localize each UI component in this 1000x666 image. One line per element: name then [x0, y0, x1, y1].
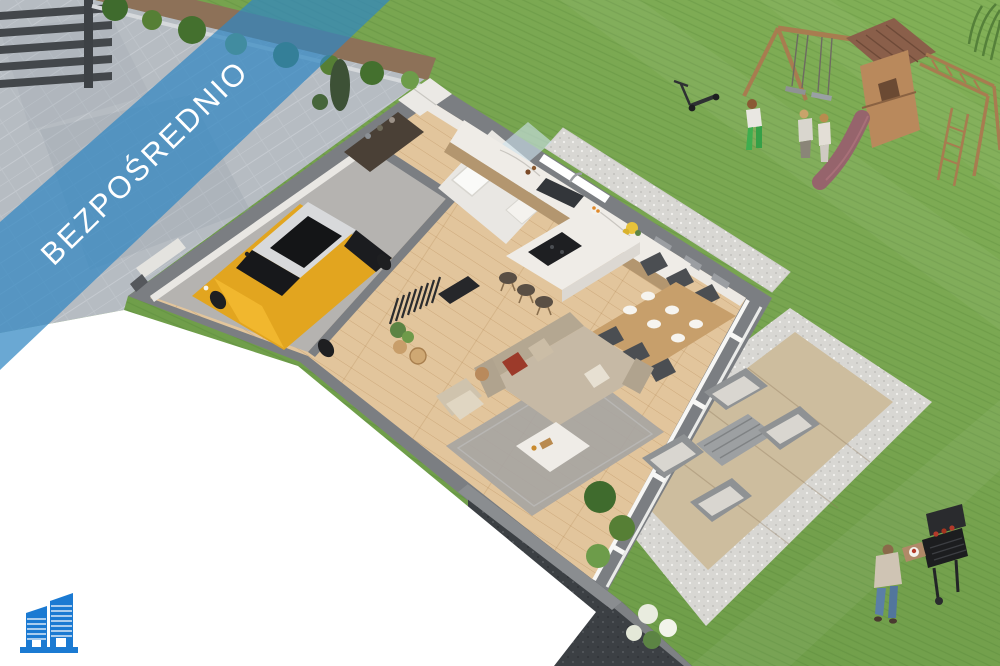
hydrangea — [626, 625, 642, 641]
scene-canvas: BEZPOŚREDNIO — [0, 0, 1000, 666]
side-table — [475, 367, 489, 381]
hob-ring — [560, 250, 564, 254]
child-shirt — [746, 108, 762, 128]
bottle — [525, 169, 530, 174]
grilled-meat — [933, 531, 938, 536]
bush — [586, 544, 610, 568]
car-headlight — [204, 286, 209, 291]
hob-ring — [550, 245, 554, 249]
child-pants — [756, 126, 762, 148]
stool — [517, 284, 535, 296]
plate — [689, 320, 703, 329]
man-shoe — [874, 616, 882, 621]
scooter-wheel — [689, 105, 696, 112]
stool — [535, 296, 553, 308]
cypress-bush — [330, 59, 350, 111]
child-head — [820, 114, 829, 123]
stool — [499, 272, 517, 284]
raw-meat — [912, 549, 916, 553]
bush — [142, 10, 162, 30]
fruit-bowl — [591, 205, 601, 215]
child-shorts — [800, 140, 811, 158]
flower-leaves — [635, 230, 641, 236]
man-shoe — [889, 618, 897, 623]
plate — [671, 334, 685, 343]
plate — [623, 306, 637, 315]
orange — [592, 206, 596, 210]
plant-pot — [393, 340, 407, 354]
scooter-wheel — [713, 94, 720, 101]
child-head — [800, 110, 809, 119]
car-mirror — [245, 252, 249, 256]
bush — [178, 16, 206, 44]
hydrangea — [659, 619, 677, 637]
table-decor — [531, 445, 536, 450]
hydrangea — [638, 604, 658, 624]
grilled-meat — [941, 528, 946, 533]
hydrangea-leaves — [643, 631, 661, 649]
logo-base — [20, 647, 78, 653]
bottle — [532, 166, 536, 170]
child-shirt — [798, 118, 813, 142]
grill-leg — [956, 560, 958, 592]
logo-windows-right — [51, 606, 72, 636]
bush — [401, 71, 419, 89]
hanging-clothes — [389, 117, 395, 123]
man-jacket — [874, 552, 902, 588]
plate — [641, 292, 655, 301]
bush — [312, 94, 328, 110]
bush — [360, 61, 384, 85]
grilled-meat — [949, 525, 954, 530]
grill-wheel — [935, 597, 943, 605]
logo-door-left — [32, 640, 41, 647]
bush — [584, 481, 616, 513]
logo-door-right — [56, 638, 66, 647]
fence-post — [84, 0, 93, 88]
plate — [647, 320, 661, 329]
orange — [596, 209, 600, 213]
basket-pouf — [410, 348, 426, 364]
child-pants — [820, 144, 829, 162]
real-estate-render: BEZPOŚREDNIO — [0, 0, 1000, 666]
hanging-clothes — [377, 125, 383, 131]
plate — [665, 306, 679, 315]
hanging-clothes — [365, 133, 371, 139]
bush — [609, 515, 635, 541]
child-shirt — [818, 122, 831, 146]
child-head — [747, 99, 757, 109]
